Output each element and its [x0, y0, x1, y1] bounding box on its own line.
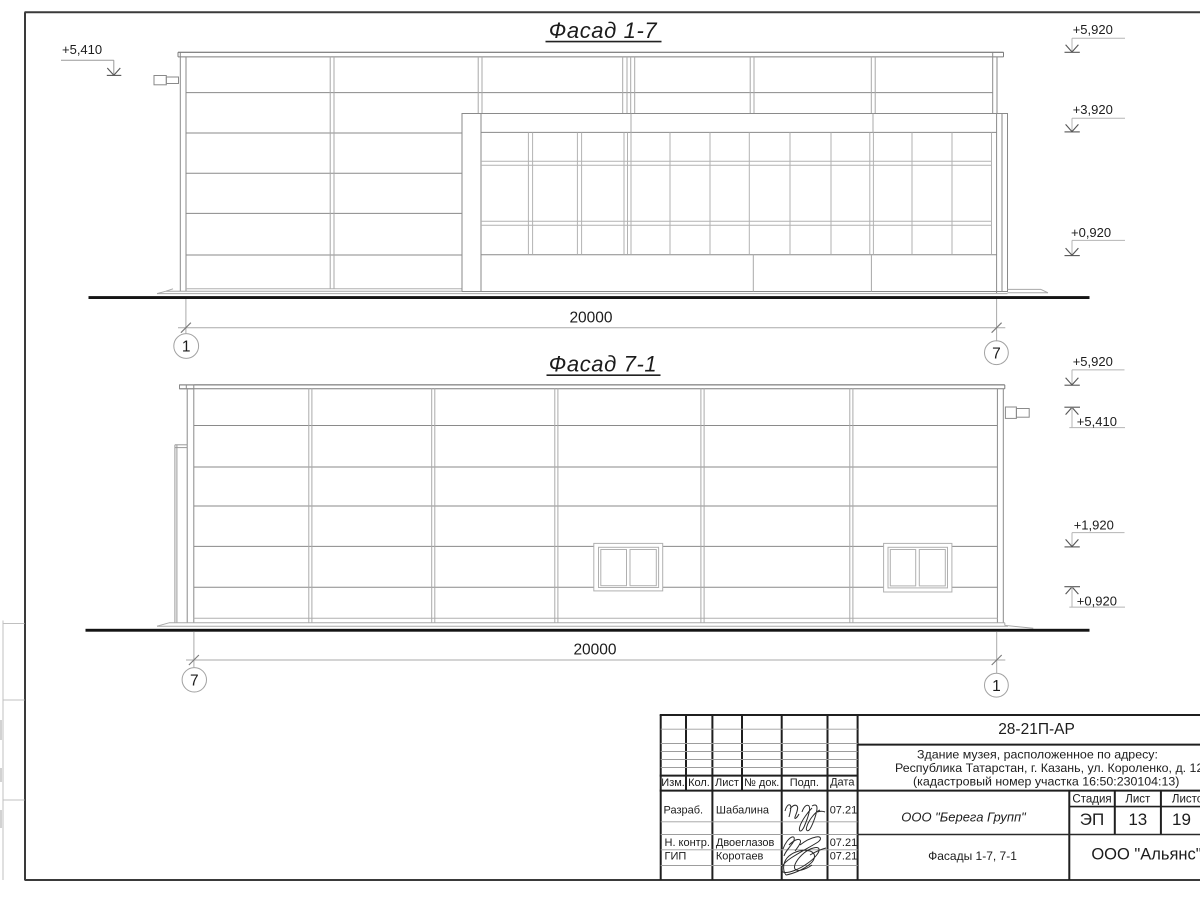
svg-text:+0,920: +0,920 — [1071, 225, 1111, 240]
svg-text:+5,920: +5,920 — [1073, 22, 1113, 37]
svg-text:07.21: 07.21 — [830, 851, 858, 863]
svg-text:Фасад 7-1: Фасад 7-1 — [549, 352, 657, 377]
svg-text:1: 1 — [992, 678, 1001, 695]
svg-text:1: 1 — [182, 339, 191, 356]
svg-text:ООО "Альянс": ООО "Альянс" — [1091, 846, 1200, 864]
svg-text:Республика Татарстан, г. Казан: Республика Татарстан, г. Казань, ул. Кор… — [895, 761, 1200, 775]
svg-text:20000: 20000 — [569, 309, 612, 326]
svg-text:Лист: Лист — [715, 777, 739, 789]
svg-text:+5,410: +5,410 — [1077, 414, 1117, 429]
svg-text:№ док.: № док. — [744, 777, 779, 789]
svg-text:ООО "Берега Групп": ООО "Берега Групп" — [901, 810, 1027, 825]
svg-text:7: 7 — [190, 672, 199, 689]
svg-text:+1,920: +1,920 — [1074, 518, 1114, 533]
svg-text:Кол.: Кол. — [688, 777, 710, 789]
svg-text:20000: 20000 — [573, 642, 616, 659]
svg-text:(кадастровый номер участка 16:: (кадастровый номер участка 16:50:230104:… — [913, 775, 1179, 789]
svg-text:Изм.: Изм. — [661, 777, 685, 789]
svg-text:Листов: Листов — [1172, 793, 1200, 805]
svg-text:13: 13 — [1128, 810, 1147, 829]
svg-text:ГИП: ГИП — [665, 851, 687, 863]
svg-text:7: 7 — [992, 345, 1001, 362]
svg-text:Фасад 1-7: Фасад 1-7 — [549, 18, 658, 43]
svg-text:Шабалина: Шабалина — [716, 805, 770, 817]
svg-text:19: 19 — [1172, 810, 1191, 829]
svg-text:Коротаев: Коротаев — [716, 851, 764, 863]
svg-text:Здание музея, расположенное по: Здание музея, расположенное по адресу: — [917, 748, 1158, 762]
svg-text:Разраб.: Разраб. — [664, 805, 704, 817]
svg-text:+5,920: +5,920 — [1073, 354, 1113, 369]
svg-text:Стадия: Стадия — [1072, 793, 1111, 805]
svg-text:Дата: Дата — [830, 777, 855, 789]
svg-text:07.21: 07.21 — [830, 805, 858, 817]
svg-text:ЭП: ЭП — [1080, 810, 1104, 829]
svg-text:Двоеглазов: Двоеглазов — [716, 837, 775, 849]
svg-text:Подп.: Подп. — [790, 777, 819, 789]
svg-text:+3,920: +3,920 — [1073, 102, 1113, 117]
svg-text:Лист: Лист — [1125, 793, 1151, 805]
svg-text:+5,410: +5,410 — [62, 42, 102, 57]
svg-text:28-21П-АР: 28-21П-АР — [998, 721, 1075, 738]
svg-text:Н. контр.: Н. контр. — [665, 837, 710, 849]
svg-text:Фасады 1-7, 7-1: Фасады 1-7, 7-1 — [928, 849, 1017, 863]
svg-text:07.21: 07.21 — [830, 837, 858, 849]
svg-text:+0,920: +0,920 — [1077, 594, 1117, 609]
